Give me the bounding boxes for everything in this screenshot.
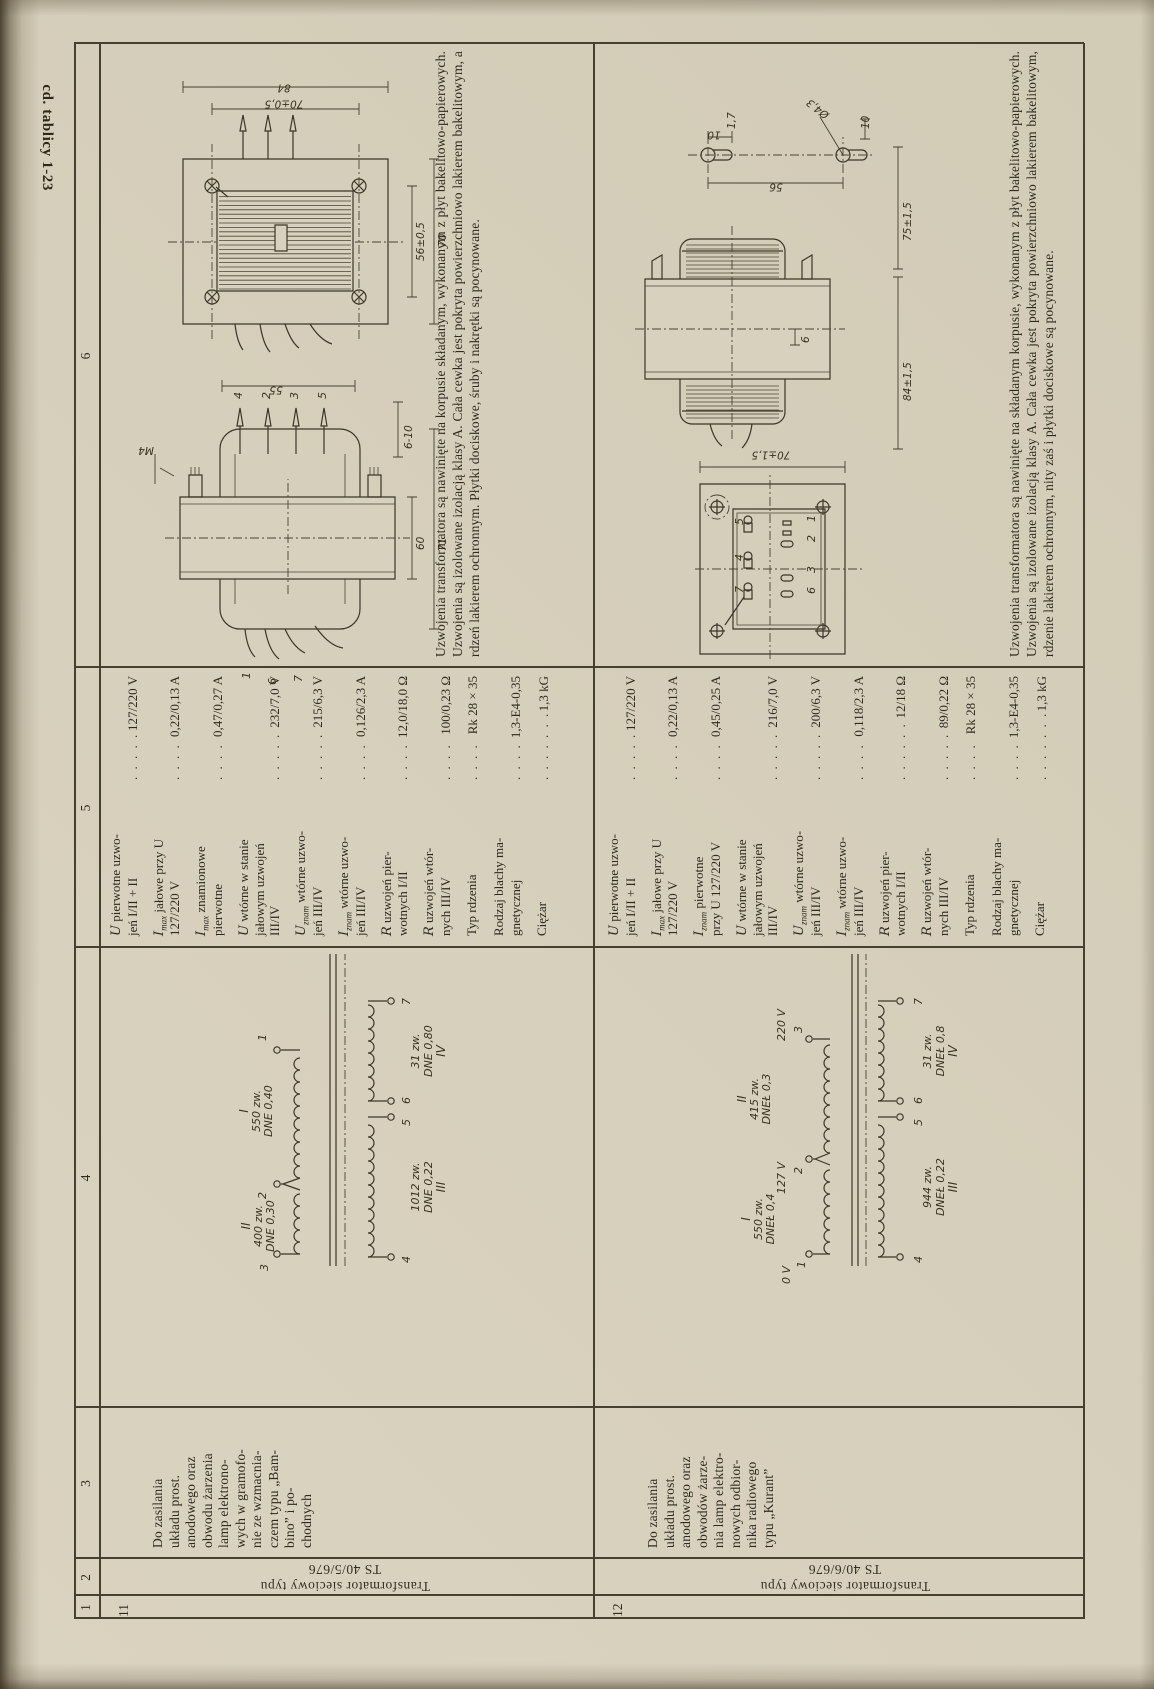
board-terminal: 7	[733, 586, 746, 593]
pin-number: 5	[316, 392, 329, 399]
application-line: wych w gramofo-	[233, 1412, 250, 1548]
column-header-1: 1	[78, 1596, 94, 1619]
spec-leader-dots: . . . . . . . . . . . . . .	[167, 740, 182, 780]
spec-value: 215/6,3 V	[310, 676, 325, 728]
spec-label: U wtórne w stanie jałowym uzwojeń III/IV	[734, 783, 781, 936]
spec-value: Rk 28 × 35	[963, 676, 978, 734]
dim-label-10: 10	[707, 128, 720, 140]
terminal-number: 3	[792, 1026, 805, 1033]
dim-label-75tol: 75±1,5	[902, 202, 914, 241]
dim-label-10b: 10	[860, 116, 872, 129]
spec-entry: Imax znamionowe pierwotne . . . . . . . …	[193, 676, 225, 936]
dim-label-70tol: 70±1,5	[752, 449, 791, 461]
terminal-voltage: 220 V	[775, 1009, 788, 1041]
page-edge-shadow	[0, 1663, 1154, 1689]
spec-leader-dots: . . . . . . . . . . . . . .	[1006, 741, 1021, 780]
page-edge-shadow	[1140, 0, 1154, 1689]
application-line: nia lamp elektro-	[711, 1412, 728, 1548]
application-line: nika radiowego	[744, 1412, 761, 1548]
dim-label-56tol: 56±0,5	[415, 222, 427, 261]
front-view-drawing	[110, 364, 450, 664]
application-line: typu „Kurant”	[761, 1412, 778, 1548]
spec-leader-dots: . . . . . . . . . . . . . .	[125, 734, 140, 780]
spec-value: 1,3-E4-0,35	[1006, 676, 1021, 738]
rotated-table-sheet: cd. tablicy 1-23 1 2 3 4 5 6 11 Transfor…	[0, 0, 1154, 1689]
dim-label-6-10: 6-10	[403, 425, 415, 449]
spec-label: R uzwojeń wtór- nych III/IV	[919, 783, 951, 936]
column-header-2: 2	[78, 1559, 94, 1596]
type-name: Transformator sieciowy typu	[260, 1579, 430, 1594]
type-code: TS 40/6/676	[809, 1562, 882, 1577]
row-separator-line	[593, 43, 595, 1619]
terminal-number: 6	[400, 1097, 413, 1104]
spec-entry: U pierwotne uzwo- jeń I/II + II . . . . …	[606, 676, 638, 936]
winding-label-III: 944 zw. DNEŁ 0,22 III	[922, 1149, 960, 1225]
spec-leader-dots: . . . . . . . . . . . . . .	[267, 731, 282, 780]
spec-leader-dots: . . . . . . . . . . . . . .	[1034, 714, 1049, 780]
application-line: anodowego oraz	[678, 1412, 695, 1548]
application-text: Do zasilaniaukładu prost.anodowego orazo…	[645, 1412, 777, 1548]
spec-entry: Rodzaj blachy ma- gnetycznej . . . . . .…	[491, 676, 523, 936]
spec-label: Imax jałowe przy U 127/220 V	[151, 783, 183, 936]
spec-entry: Ciężar . . . . . . . . . . . . . . 1,3 k…	[1032, 676, 1049, 936]
type-designation: Transformator sieciowy typu TS 40/5/676	[140, 1561, 550, 1595]
bottom-view-drawing	[695, 449, 865, 659]
column-line-2-3	[74, 1558, 1084, 1560]
lead-number: 6	[266, 678, 279, 685]
spec-value: 0,45/0,25 A	[708, 676, 723, 737]
spec-label: Uznam wtórne uzwo- jeń III/IV	[293, 783, 325, 936]
spec-label: Imax znamionowe pierwotne	[193, 783, 225, 936]
spec-label: U wtórne w stanie jałowym uzwojeń III/IV	[236, 783, 283, 936]
header-separator-line	[99, 43, 101, 1619]
winding-label-IV: 31 zw. DNEŁ 0,8 IV	[922, 1013, 960, 1089]
application-line: Do zasilania	[645, 1412, 662, 1548]
spec-label: R uzwojeń wtór- nych III/IV	[421, 783, 453, 936]
column-header-5: 5	[78, 668, 94, 948]
spec-entry: Iznam wtórne uzwo- jeń III/IV . . . . . …	[834, 676, 866, 936]
spec-leader-dots: . . . . . . . . . . . . . .	[936, 731, 951, 780]
spec-leader-dots: . . . . . . . . . . . . . .	[536, 714, 551, 780]
board-terminal: 6	[805, 587, 818, 594]
spec-label: Uznam wtórne uzwo- jeń III/IV	[791, 783, 823, 936]
spec-entry: Typ rdzenia . . . . . . . . . . . . . . …	[962, 676, 979, 936]
spec-entry: R uzwojeń pier- wotnych I/II . . . . . .…	[379, 676, 411, 936]
application-line: lamp elektrono-	[216, 1412, 233, 1548]
type-name: Transformator sieciowy typu	[760, 1579, 930, 1594]
spec-value: 0,22/0,13 A	[665, 676, 680, 737]
spec-entry: U wtórne w stanie jałowym uzwojeń III/IV…	[236, 676, 283, 936]
spec-value: 12,0/18,0 Ω	[395, 676, 410, 738]
spec-entry: Uznam wtórne uzwo- jeń III/IV . . . . . …	[791, 676, 823, 936]
dim-label-55: 55	[269, 383, 282, 395]
dim-label-84: 84	[277, 81, 290, 93]
column-header-6: 6	[78, 44, 94, 668]
side-view-drawing	[150, 39, 450, 349]
application-text: Do zasilaniaukładu prost.anodowego orazo…	[150, 1412, 315, 1548]
spec-label: R uzwojeń pier- wotnych I/II	[877, 783, 909, 936]
winding-label-III: 1012 zw. DNE 0,22 III	[410, 1149, 448, 1225]
spec-entry: U pierwotne uzwo- jeń I/II + II . . . . …	[108, 676, 140, 936]
terminal-number: 4	[400, 1256, 413, 1263]
spec-label: U pierwotne uzwo- jeń I/II + II	[108, 783, 140, 936]
spec-leader-dots: . . . . . . . . . . . . . .	[765, 731, 780, 780]
application-line: bino” i po-	[282, 1412, 299, 1548]
spec-leader-dots: . . . . . . . . . . . . . .	[893, 722, 908, 780]
spec-value: 200/6,3 V	[808, 676, 823, 728]
spec-value: 216/7,0 V	[765, 676, 780, 728]
spec-value: 100/0,23 Ω	[438, 676, 453, 735]
spec-entry: R uzwojeń pier- wotnych I/II . . . . . .…	[877, 676, 909, 936]
spec-entry: Iznam pierwotne przy U 127/220 V . . . .…	[691, 676, 723, 936]
spec-entry: Imax jałowe przy U 127/220 V . . . . . .…	[151, 676, 183, 936]
spec-leader-dots: . . . . . . . . . . . . . .	[353, 740, 368, 780]
column-header-3: 3	[78, 1408, 94, 1559]
spec-leader-dots: . . . . . . . . . . . . . .	[963, 737, 978, 780]
spec-value: 1,3-E4-0,35	[508, 676, 523, 738]
spec-entry: Typ rdzenia . . . . . . . . . . . . . . …	[464, 676, 481, 936]
terminal-number: 1	[795, 1261, 808, 1268]
application-line: układu prost.	[662, 1412, 679, 1548]
spec-list: U pierwotne uzwo- jeń I/II + II . . . . …	[606, 676, 1060, 936]
spec-leader-dots: . . . . . . . . . . . . . .	[210, 740, 225, 780]
type-designation: Transformator sieciowy typu TS 40/6/676	[640, 1561, 1050, 1595]
spec-leader-dots: . . . . . . . . . . . . . .	[508, 741, 523, 780]
spec-leader-dots: . . . . . . . . . . . . . .	[851, 740, 866, 780]
spec-label: Rodzaj blachy ma- gnetycznej	[989, 783, 1021, 936]
spec-label: Typ rdzenia	[962, 783, 979, 936]
terminal-number: 4	[912, 1256, 925, 1263]
application-line: Do zasilania	[150, 1412, 167, 1548]
winding-label-IV: 31 zw. DNE 0,80 IV	[410, 1013, 448, 1089]
winding-label-I: I 550 zw. DNEŁ 0,4	[740, 1181, 778, 1257]
spec-value: 0,47/0,27 A	[210, 676, 225, 737]
winding-label-II: II 400 zw. DNE 0,30	[240, 1188, 278, 1264]
spec-label: Iznam pierwotne przy U 127/220 V	[691, 783, 723, 936]
spec-leader-dots: . . . . . . . . . . . . . .	[438, 738, 453, 780]
spec-label: Ciężar	[534, 783, 551, 936]
application-line: nie ze wzmacnia-	[249, 1412, 266, 1548]
table-border-bottom	[1083, 43, 1085, 1619]
winding-label-I: I 550 zw. DNE 0,40	[238, 1073, 276, 1149]
type-code: TS 40/5/676	[309, 1562, 382, 1577]
spec-value: 0,22/0,13 A	[167, 676, 182, 737]
application-line: obwodów żarze-	[695, 1412, 712, 1548]
terminal-voltage: 0 V	[780, 1266, 793, 1284]
spec-entry: Ciężar . . . . . . . . . . . . . . 1,3 k…	[534, 676, 551, 936]
table-border-left	[74, 1618, 1084, 1620]
spec-entry: Uznam wtórne uzwo- jeń III/IV . . . . . …	[293, 676, 325, 936]
spec-leader-dots: . . . . . . . . . . . . . .	[665, 740, 680, 780]
spec-entry: Iznam wtórne uzwo- jeń III/IV . . . . . …	[336, 676, 368, 936]
terminal-number: 2	[792, 1167, 805, 1174]
dim-label-1-7: 1,7	[726, 112, 738, 129]
terminal-number: 1	[256, 1034, 269, 1041]
construction-note: Uzwojenia transformatora są nawinięte na…	[1006, 51, 1058, 657]
application-line: obwodu żarzenia	[200, 1412, 217, 1548]
board-terminal: 4	[733, 554, 746, 561]
spec-entry: R uzwojeń wtór- nych III/IV . . . . . . …	[421, 676, 453, 936]
scanned-book-page: cd. tablicy 1-23 1 2 3 4 5 6 11 Transfor…	[0, 0, 1154, 1689]
spec-leader-dots: . . . . . . . . . . . . . .	[395, 741, 410, 780]
spec-leader-dots: . . . . . . . . . . . . . .	[310, 731, 325, 780]
binding-shadow	[0, 0, 40, 1689]
spec-value: 89/0,22 Ω	[936, 676, 951, 728]
board-terminal: 1	[805, 515, 818, 522]
spec-value: 1,3 kG	[1034, 676, 1049, 711]
spec-label: Imax jałowe przy U 127/220 V	[649, 783, 681, 936]
spec-label: Iznam wtórne uzwo- jeń III/IV	[336, 783, 368, 936]
spec-leader-dots: . . . . . . . . . . . . . .	[808, 731, 823, 780]
board-terminal: 2	[805, 535, 818, 542]
spec-label: R uzwojeń pier- wotnych I/II	[379, 783, 411, 936]
spec-list: U pierwotne uzwo- jeń I/II + II . . . . …	[108, 676, 562, 936]
spec-entry: Imax jałowe przy U 127/220 V . . . . . .…	[649, 676, 681, 936]
column-header-4: 4	[78, 948, 94, 1408]
dim-label-6: 6	[800, 336, 812, 343]
dim-label-56: 56	[769, 180, 782, 192]
row-number: 11	[116, 1604, 132, 1617]
column-line-5-6	[74, 667, 1084, 669]
table-caption: cd. tablicy 1-23	[38, 46, 55, 191]
board-terminal: 5	[733, 518, 746, 525]
spec-value: 127/220 V	[125, 676, 140, 731]
spec-entry: U wtórne w stanie jałowym uzwojeń III/IV…	[734, 676, 781, 936]
dim-label-m4: M4	[138, 444, 154, 456]
spec-value: 0,126/2,3 A	[353, 676, 368, 737]
spec-value: 0,118/2,3 A	[851, 676, 866, 737]
construction-note: Uzwojenia transformatora są nawinięte na…	[432, 51, 484, 657]
spec-entry: Rodzaj blachy ma- gnetycznej . . . . . .…	[989, 676, 1021, 936]
spec-label: Rodzaj blachy ma- gnetycznej	[491, 783, 523, 936]
spec-leader-dots: . . . . . . . . . . . . . .	[623, 734, 638, 780]
spec-label: U pierwotne uzwo- jeń I/II + II	[606, 783, 638, 936]
spec-value: 12/18 Ω	[893, 676, 908, 719]
spec-value: 127/220 V	[623, 676, 638, 731]
page-edge-shadow	[0, 0, 1154, 16]
terminal-number: 6	[912, 1097, 925, 1104]
spec-value: 1,3 kG	[536, 676, 551, 711]
row-number: 12	[610, 1604, 626, 1618]
application-line: nowych odbior-	[728, 1412, 745, 1548]
table-border-top	[74, 43, 76, 1619]
winding-label-II: II 415 zw. DNEŁ 0,3	[736, 1061, 774, 1137]
dim-label-84tol: 84±1,5	[902, 362, 914, 401]
column-line-3-4	[74, 1407, 1084, 1409]
application-line: chodnych	[299, 1412, 316, 1548]
spec-entry: R uzwojeń wtór- nych III/IV . . . . . . …	[919, 676, 951, 936]
lead-number: 1	[240, 672, 253, 679]
dim-label-70tol: 70±0,5	[265, 98, 304, 110]
application-line: czem typu „Bam-	[266, 1412, 283, 1548]
spec-value: Rk 28 × 35	[465, 676, 480, 734]
spec-label: Ciężar	[1032, 783, 1049, 936]
dim-label-60: 60	[415, 537, 427, 550]
application-line: anodowego oraz	[183, 1412, 200, 1548]
terminal-number: 3	[258, 1264, 271, 1271]
pin-number: 3	[288, 392, 301, 399]
spec-leader-dots: . . . . . . . . . . . . . .	[708, 740, 723, 780]
terminal-number: 5	[912, 1119, 925, 1126]
spec-leader-dots: . . . . . . . . . . . . . .	[465, 737, 480, 780]
spec-label: Iznam wtórne uzwo- jeń III/IV	[834, 783, 866, 936]
terminal-number: 5	[400, 1119, 413, 1126]
spec-label: Typ rdzenia	[464, 783, 481, 936]
terminal-number: 7	[400, 998, 413, 1005]
pin-number: 4	[232, 392, 245, 399]
board-terminal: 3	[805, 566, 818, 573]
terminal-number: 7	[912, 998, 925, 1005]
application-line: układu prost.	[167, 1412, 184, 1548]
lead-number: 7	[292, 675, 305, 682]
